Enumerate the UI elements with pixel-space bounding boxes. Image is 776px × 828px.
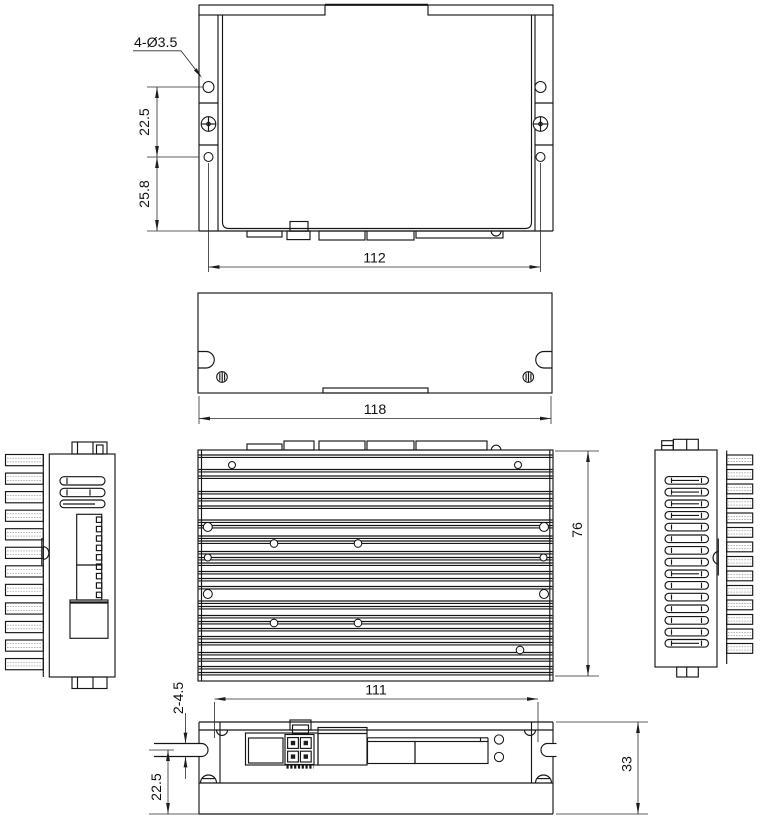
mounting-hole	[204, 153, 213, 162]
leader-arrow	[194, 68, 202, 78]
dim-label-25-8: 25.8	[137, 180, 153, 208]
drawing-canvas: 4-Ø3.5 22.5 25.8 112 118	[0, 0, 776, 828]
top-connector-tab	[662, 439, 699, 450]
dim-label-118: 118	[364, 402, 387, 418]
dim-label-33: 33	[620, 756, 636, 772]
left-side-view	[6, 442, 116, 689]
power-connector-4pin	[285, 720, 314, 767]
dim-label-112: 112	[363, 251, 386, 267]
slotted-screw-symbol	[523, 372, 534, 383]
cover-plate-view	[198, 293, 552, 393]
ear-notch	[217, 730, 228, 736]
connector-tabs-heatsink-view	[247, 441, 501, 450]
cover-plate-dimensions: 118	[199, 396, 551, 424]
heatsink-dimensions: 76	[555, 451, 599, 676]
signal-connector-strip	[368, 738, 489, 764]
dim-label-hole-callout: 4-Ø3.5	[134, 35, 177, 51]
dim-label-111: 111	[365, 683, 387, 699]
screw-head-dome	[201, 775, 217, 783]
vent-slots	[60, 477, 105, 508]
top-cover-edge-right	[428, 5, 553, 15]
vent-slots	[665, 477, 709, 647]
mounting-hole	[203, 82, 214, 93]
dip-switch-block	[77, 514, 102, 600]
mounting-slot-right	[541, 744, 557, 757]
top-view-dimensions: 4-Ø3.5 22.5 25.8 112	[133, 35, 541, 272]
technical-drawing-page: 4-Ø3.5 22.5 25.8 112 118	[0, 0, 776, 828]
connector-block	[70, 600, 108, 638]
keyway-notch	[536, 352, 552, 369]
slotted-screw-symbol	[217, 372, 228, 383]
phillips-screw-symbol	[201, 117, 216, 132]
retaining-clip	[713, 539, 719, 576]
led-indicator	[494, 735, 503, 744]
keyway-notch	[198, 352, 214, 369]
heatsink-fin-teeth	[6, 455, 44, 670]
dim-label-22-5-front: 22.5	[149, 773, 165, 801]
bottom-connector-tab	[72, 677, 107, 689]
base-plate	[199, 783, 553, 814]
dim-label-22-5: 22.5	[137, 108, 153, 136]
led-indicator	[494, 752, 503, 761]
ear-notch	[525, 730, 536, 736]
mounting-hole	[535, 82, 546, 93]
heatsink-fins	[199, 455, 553, 675]
heatsink-view	[198, 441, 553, 681]
phillips-screw-symbol	[533, 117, 548, 132]
body-outline	[223, 15, 532, 229]
heatsink-fin-teeth	[727, 455, 753, 653]
top-cover-edge-left	[199, 5, 325, 15]
screw-head-dome	[536, 775, 552, 783]
front-view-dimensions: 111 2-4.5 22.5 33	[149, 682, 648, 814]
top-view	[199, 5, 553, 240]
mounting-hole	[536, 153, 545, 162]
dim-label-76: 76	[570, 522, 586, 538]
top-connector-tab	[72, 442, 107, 454]
dim-label-2-4-5: 2-4.5	[171, 682, 187, 714]
bottom-connector-tab	[677, 667, 699, 677]
right-side-view	[655, 439, 753, 677]
connector-module	[318, 728, 367, 766]
bottom-lip	[323, 388, 428, 393]
